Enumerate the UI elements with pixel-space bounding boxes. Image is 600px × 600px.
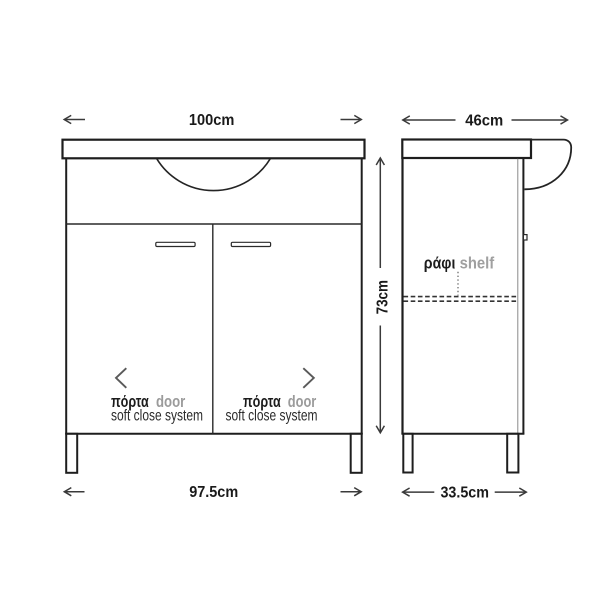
svg-text:73cm: 73cm — [374, 280, 391, 314]
svg-text:shelf: shelf — [460, 255, 495, 273]
svg-text:46cm: 46cm — [465, 113, 503, 130]
svg-text:100cm: 100cm — [189, 112, 235, 129]
svg-text:soft close system: soft close system — [226, 407, 318, 424]
svg-text:soft close system: soft close system — [111, 407, 203, 424]
svg-text:97.5cm: 97.5cm — [189, 484, 238, 501]
svg-text:33.5cm: 33.5cm — [440, 484, 489, 501]
svg-text:ράφι: ράφι — [424, 255, 456, 273]
